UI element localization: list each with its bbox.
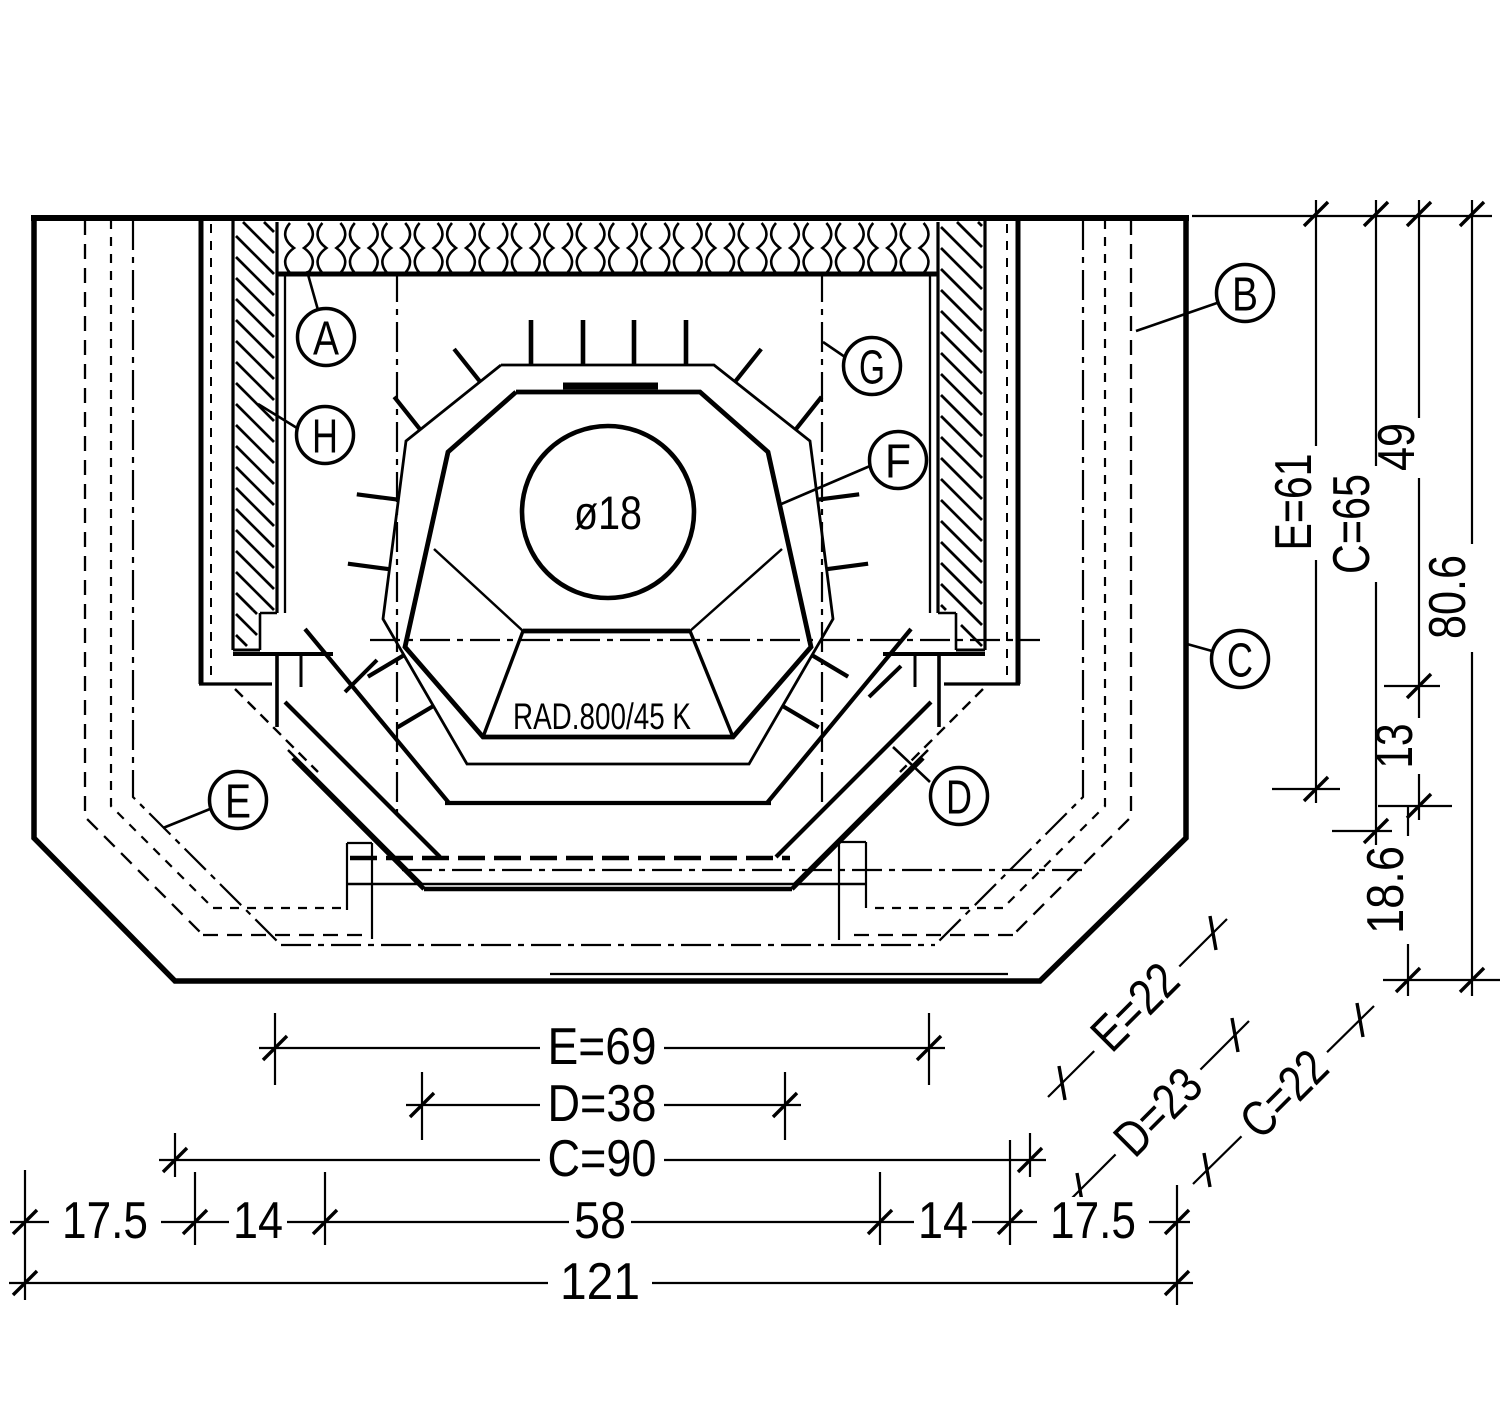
svg-text:C: C (1227, 634, 1253, 687)
svg-text:E=61: E=61 (1265, 454, 1323, 551)
svg-text:B: B (1232, 268, 1258, 321)
svg-text:13: 13 (1366, 724, 1424, 769)
svg-text:17.5: 17.5 (62, 1192, 148, 1250)
svg-text:ø18: ø18 (574, 486, 642, 539)
svg-text:80.6: 80.6 (1419, 555, 1477, 639)
svg-text:E: E (225, 775, 251, 828)
svg-text:A: A (313, 312, 339, 365)
svg-text:RAD.800/45 K: RAD.800/45 K (513, 696, 691, 737)
svg-text:58: 58 (574, 1192, 626, 1250)
svg-text:17.5: 17.5 (1050, 1192, 1136, 1250)
svg-text:14: 14 (918, 1192, 968, 1250)
svg-text:H: H (312, 410, 338, 463)
svg-text:49: 49 (1368, 423, 1426, 471)
svg-text:18.6: 18.6 (1357, 846, 1415, 934)
svg-text:C=90: C=90 (548, 1130, 657, 1188)
svg-text:14: 14 (233, 1192, 283, 1250)
svg-text:D=38: D=38 (548, 1075, 657, 1133)
svg-text:G: G (859, 341, 885, 394)
svg-text:E=69: E=69 (548, 1018, 657, 1076)
svg-text:D: D (946, 771, 972, 824)
svg-text:121: 121 (560, 1253, 640, 1311)
svg-text:F: F (885, 435, 911, 488)
svg-text:C=65: C=65 (1323, 474, 1381, 574)
